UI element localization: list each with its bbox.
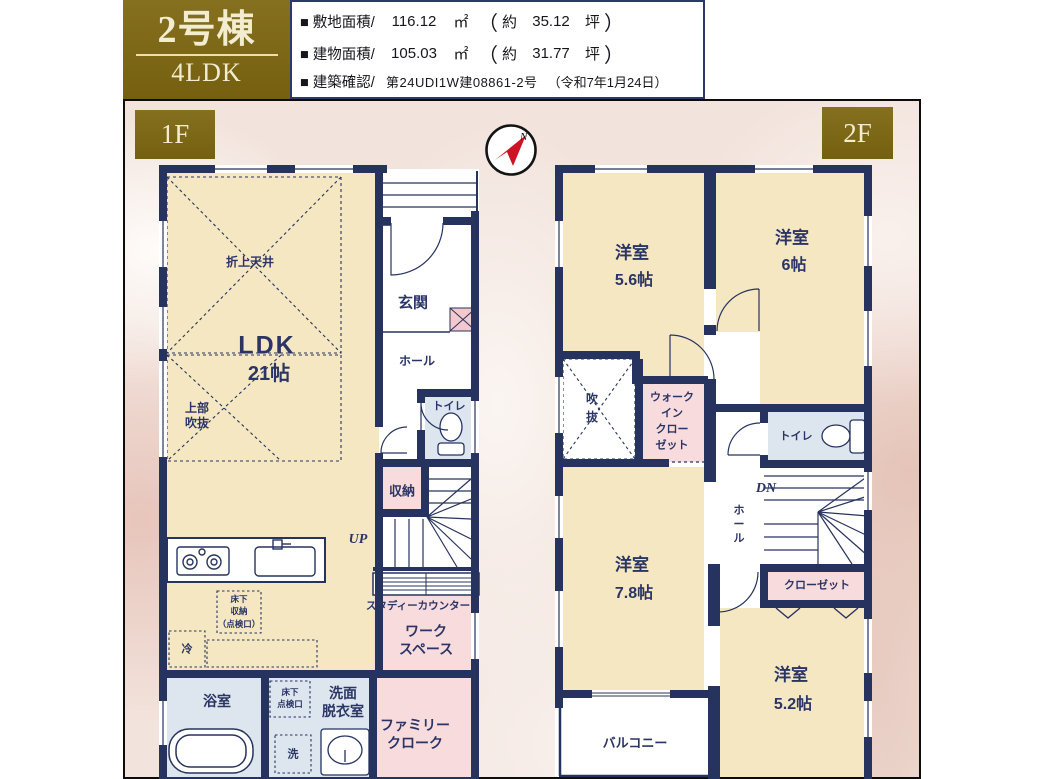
- label-hall-2f-1: ホ: [734, 506, 745, 517]
- label-underfloor-storage-1: 床下: [230, 595, 247, 604]
- paren-open: （: [478, 7, 498, 36]
- label-void-2: 抜: [586, 411, 598, 423]
- plan-1f-drawing: [155, 161, 485, 779]
- label-toilet-2f: トイレ: [780, 432, 813, 443]
- label-coffered-ceiling: 折上天井: [226, 256, 274, 268]
- room-78: [559, 467, 704, 690]
- bldg-area-value: 105.03: [386, 45, 442, 62]
- plan-canvas: 1F 2F N: [123, 99, 921, 779]
- label-washroom-2: 脱衣室: [322, 704, 364, 718]
- label-workspace-1: ワーク: [405, 624, 447, 638]
- label-closet: クローゼット: [784, 581, 850, 592]
- label-wic-3: クロー: [656, 425, 689, 436]
- label-family-cloak-2: クローク: [387, 736, 443, 750]
- title-divider: [136, 54, 278, 56]
- kitchen-counter: [167, 538, 325, 582]
- label-room52-size: 5.2帖: [774, 697, 812, 713]
- toilet-icon-1f: [438, 413, 464, 455]
- label-bathroom: 浴室: [203, 694, 231, 708]
- floor-tag-1f: 1F: [135, 110, 215, 159]
- label-up: UP: [349, 533, 368, 547]
- paren-close: ）: [604, 39, 624, 68]
- label-wic-1: ウォーク: [650, 393, 694, 404]
- label-underfloor-access-1: 床下: [281, 688, 298, 697]
- label-room56: 洋室: [615, 245, 649, 262]
- building-number: 2号棟: [157, 11, 255, 51]
- label-room56-size: 5.6帖: [615, 273, 653, 289]
- label-void-above-1: 上部: [185, 402, 209, 414]
- label-room52: 洋室: [774, 667, 808, 684]
- land-area-label: ■ 敷地面積/: [300, 11, 386, 32]
- plan-2f: 洋室 5.6帖 洋室 6帖 吹 抜 ウォーク イン クロー ゼット トイレ DN…: [550, 161, 880, 779]
- building-layout: 4LDK: [171, 58, 241, 88]
- land-area-unit: ㎡: [446, 11, 476, 32]
- label-entrance: 玄関: [398, 296, 428, 311]
- approx-label: 約: [502, 43, 517, 64]
- label-void-above-2: 吹抜: [185, 417, 209, 429]
- compass-icon: N: [483, 122, 539, 178]
- room-52: [720, 608, 868, 777]
- compass-north-label: N: [519, 131, 528, 143]
- label-toilet-1f: トイレ: [433, 402, 466, 413]
- label-ldk: LDK: [238, 334, 295, 359]
- bldg-area-label: ■ 建物面積/: [300, 43, 386, 64]
- paren-open: （: [478, 39, 498, 68]
- land-area-value: 116.12: [386, 13, 442, 30]
- label-family-cloak-1: ファミリー: [380, 718, 450, 732]
- label-room6: 洋室: [775, 230, 809, 247]
- floor-tag-2f: 2F: [822, 107, 893, 159]
- label-washer: 洗: [288, 750, 299, 761]
- label-washroom-1: 洗面: [329, 686, 357, 700]
- bathtub-icon: [169, 729, 253, 773]
- label-hall-2f-2: ー: [734, 520, 745, 531]
- label-underfloor-access-2: 点検口: [277, 700, 303, 709]
- floorplan-page: 2号棟 4LDK ■ 敷地面積/ 116.12 ㎡ （ 約 35.12 坪 ） …: [0, 0, 1039, 779]
- confirm-date: （令和7年1月24日）: [548, 72, 668, 91]
- plan-1f: 折上天井 LDK 21帖 上部 吹抜 玄関 ホール トイレ 収納 UP スタディ…: [155, 161, 485, 779]
- label-room6-size: 6帖: [782, 258, 807, 274]
- label-ldk-size: 21帖: [248, 364, 290, 384]
- label-hall-1f: ホール: [399, 355, 435, 367]
- spec-info-box: ■ 敷地面積/ 116.12 ㎡ （ 約 35.12 坪 ） ■ 建物面積/ 1…: [290, 0, 705, 99]
- spec-row-confirmation: ■ 建築確認/ 第24UDI1W建08861-2号 （令和7年1月24日）: [300, 71, 699, 92]
- building-title-box: 2号棟 4LDK: [123, 0, 290, 99]
- spec-row-building: ■ 建物面積/ 105.03 ㎡ （ 約 31.77 坪 ）: [300, 39, 699, 68]
- bldg-area-unit: ㎡: [446, 43, 476, 64]
- label-fridge: 冷: [182, 645, 193, 656]
- label-underfloor-storage-3: （点検口）: [218, 620, 261, 629]
- paren-close: ）: [604, 7, 624, 36]
- label-dn: DN: [756, 482, 776, 496]
- washbasin-icon: [321, 729, 369, 775]
- land-tsubo-value: 35.12: [525, 13, 577, 30]
- plan-2f-drawing: [550, 161, 880, 779]
- confirm-number: 第24UDI1W建08861-2号: [386, 72, 538, 91]
- approx-label: 約: [502, 11, 517, 32]
- balcony-window: [592, 690, 670, 698]
- label-wic-2: イン: [661, 409, 683, 420]
- label-wic-4: ゼット: [656, 441, 689, 452]
- tsubo-unit: 坪: [585, 43, 600, 64]
- label-underfloor-storage-2: 収納: [230, 607, 247, 616]
- label-study-counter: スタディーカウンター: [366, 601, 470, 612]
- label-void-1: 吹: [586, 393, 598, 405]
- label-hall-2f-3: ル: [734, 534, 745, 545]
- tsubo-unit: 坪: [585, 11, 600, 32]
- label-room78: 洋室: [615, 557, 649, 574]
- label-room78-size: 7.8帖: [615, 586, 653, 602]
- study-counter-icon: [373, 573, 479, 595]
- bldg-tsubo-value: 31.77: [525, 45, 577, 62]
- label-workspace-2: スペース: [399, 642, 453, 656]
- label-balcony: バルコニー: [603, 737, 668, 750]
- spec-row-land: ■ 敷地面積/ 116.12 ㎡ （ 約 35.12 坪 ）: [300, 7, 699, 36]
- label-storage: 収納: [389, 485, 415, 498]
- confirm-label: ■ 建築確認/: [300, 71, 386, 92]
